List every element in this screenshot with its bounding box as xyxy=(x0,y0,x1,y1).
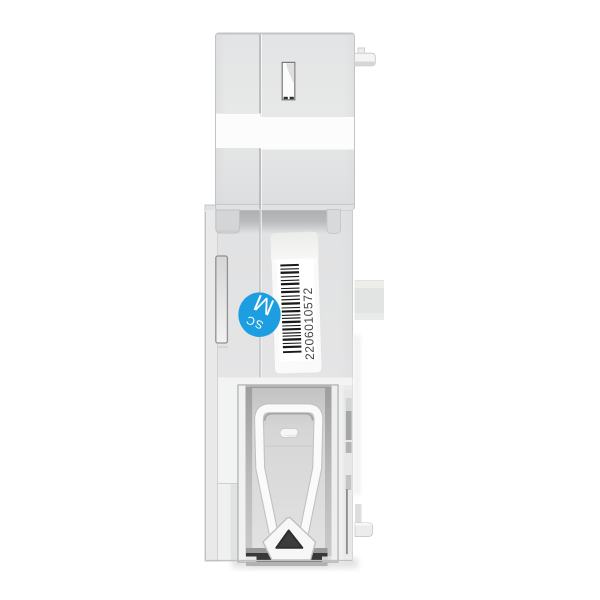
svg-text:2206010572: 2206010572 xyxy=(301,287,317,360)
